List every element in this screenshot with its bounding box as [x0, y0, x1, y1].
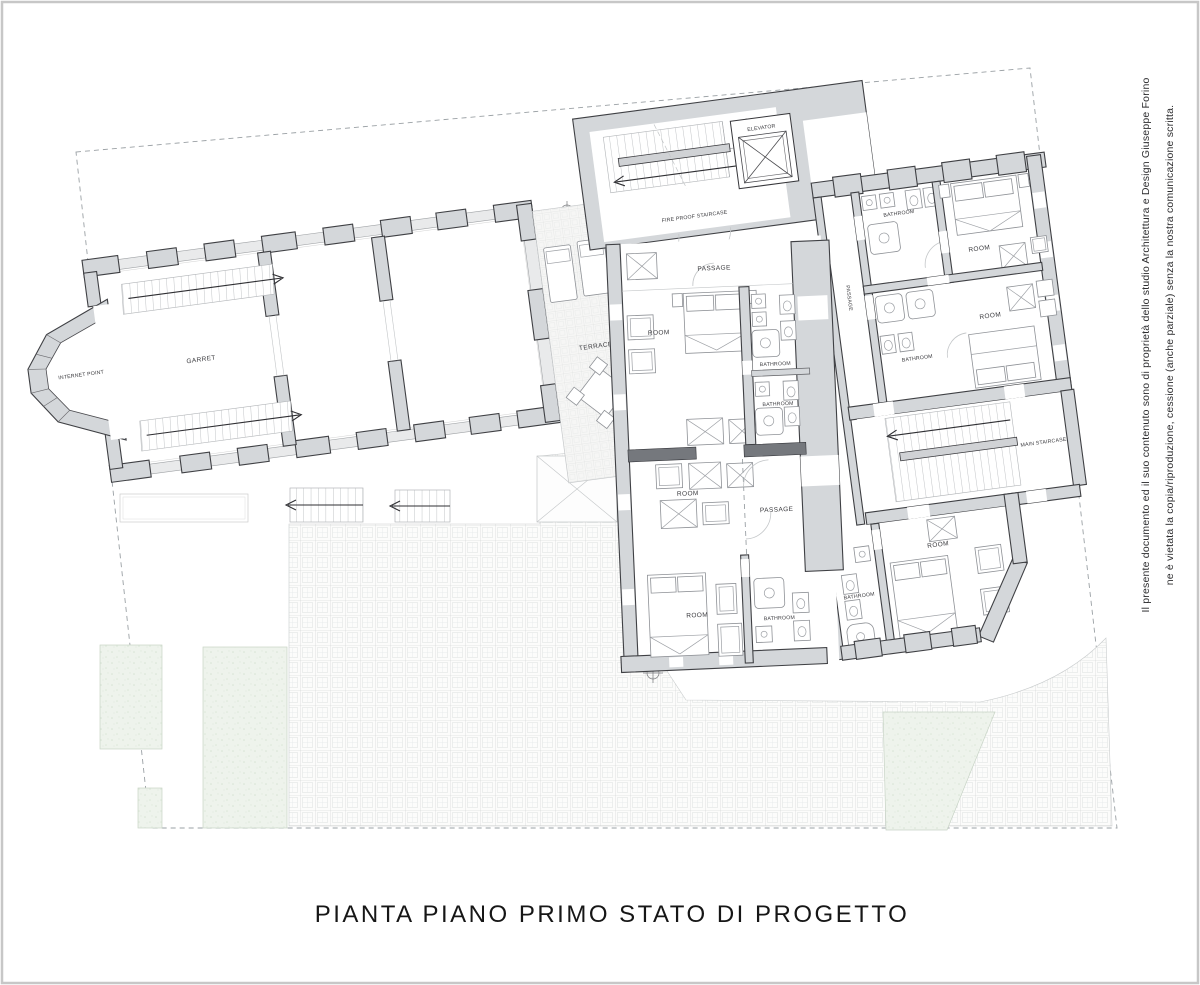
copyright-line-2: ne è vietata la copia/riproduzione, cess… [1164, 105, 1176, 586]
passage-center-top-label: PASSAGE [697, 264, 731, 272]
central-wing: PASSAGE ROOM BATHROOM [603, 235, 847, 672]
room-bottom-right: BATHROOM ROOM [812, 493, 1037, 664]
drawing-title: PIANTA PIANO PRIMO STATO DI PROGETTO [315, 901, 910, 928]
floor-plan-drawing: INTERNET POINT GARRET [0, 0, 1200, 985]
passage-center-mid-label: PASSAGE [760, 506, 794, 514]
garret-wing: INTERNET POINT GARRET [15, 200, 561, 491]
room-center-bottom-label: ROOM [686, 612, 708, 620]
floor-plan-sheet: INTERNET POINT GARRET [0, 0, 1200, 985]
room-center-mid-label: ROOM [677, 490, 699, 498]
copyright-line-1: Il presente documento ed il suo contenut… [1140, 77, 1152, 612]
planter [120, 494, 248, 522]
internet-point-tower: INTERNET POINT [20, 299, 129, 452]
room-center-top-label: ROOM [648, 329, 670, 337]
exterior-stairs [286, 488, 450, 522]
green-area [138, 788, 162, 828]
copyright-note: Il presente documento ed il suo contenut… [1140, 77, 1176, 612]
green-area [203, 647, 287, 828]
elevator: ELEVATOR [730, 113, 798, 188]
green-area [100, 645, 162, 749]
